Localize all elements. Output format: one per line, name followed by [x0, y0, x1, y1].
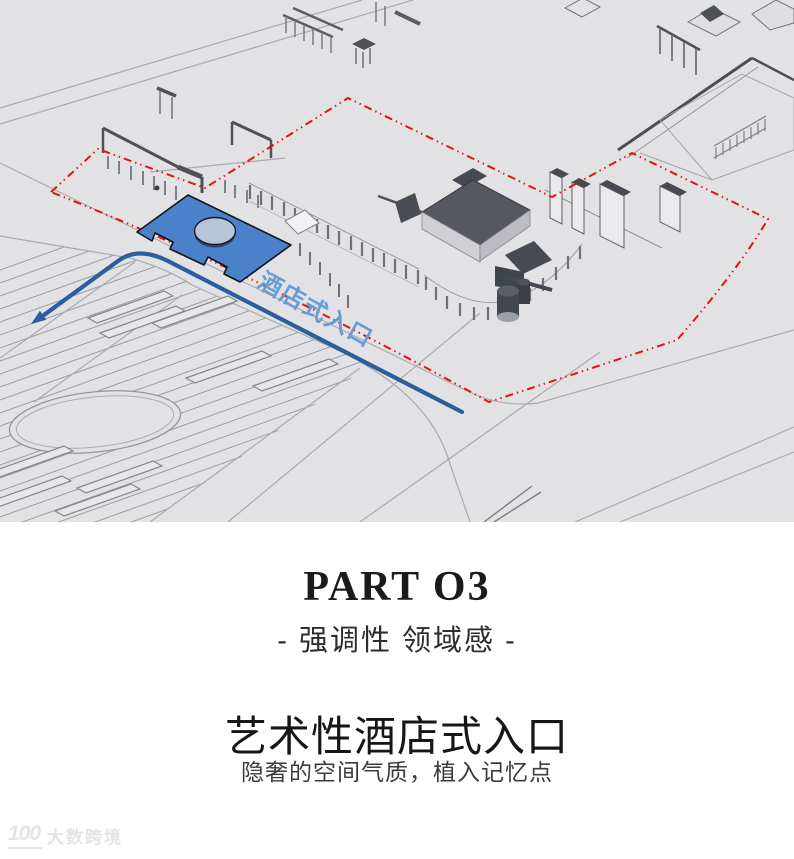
part-title: PART O3: [0, 563, 794, 611]
watermark: 100 大数跨境: [8, 822, 123, 849]
plaza-ellipse: [195, 218, 236, 245]
site-plan-svg: 酒店式入口: [0, 0, 794, 522]
watermark-text: 大数跨境: [47, 823, 123, 848]
part-subtitle: - 强调性 领域感 -: [0, 617, 794, 659]
site-plan-illustration: 酒店式入口: [0, 0, 794, 522]
subheadline: 隐奢的空间气质，植入记忆点: [0, 753, 794, 787]
watermark-logo: 100: [8, 822, 42, 849]
cylinder-base: [497, 312, 519, 322]
